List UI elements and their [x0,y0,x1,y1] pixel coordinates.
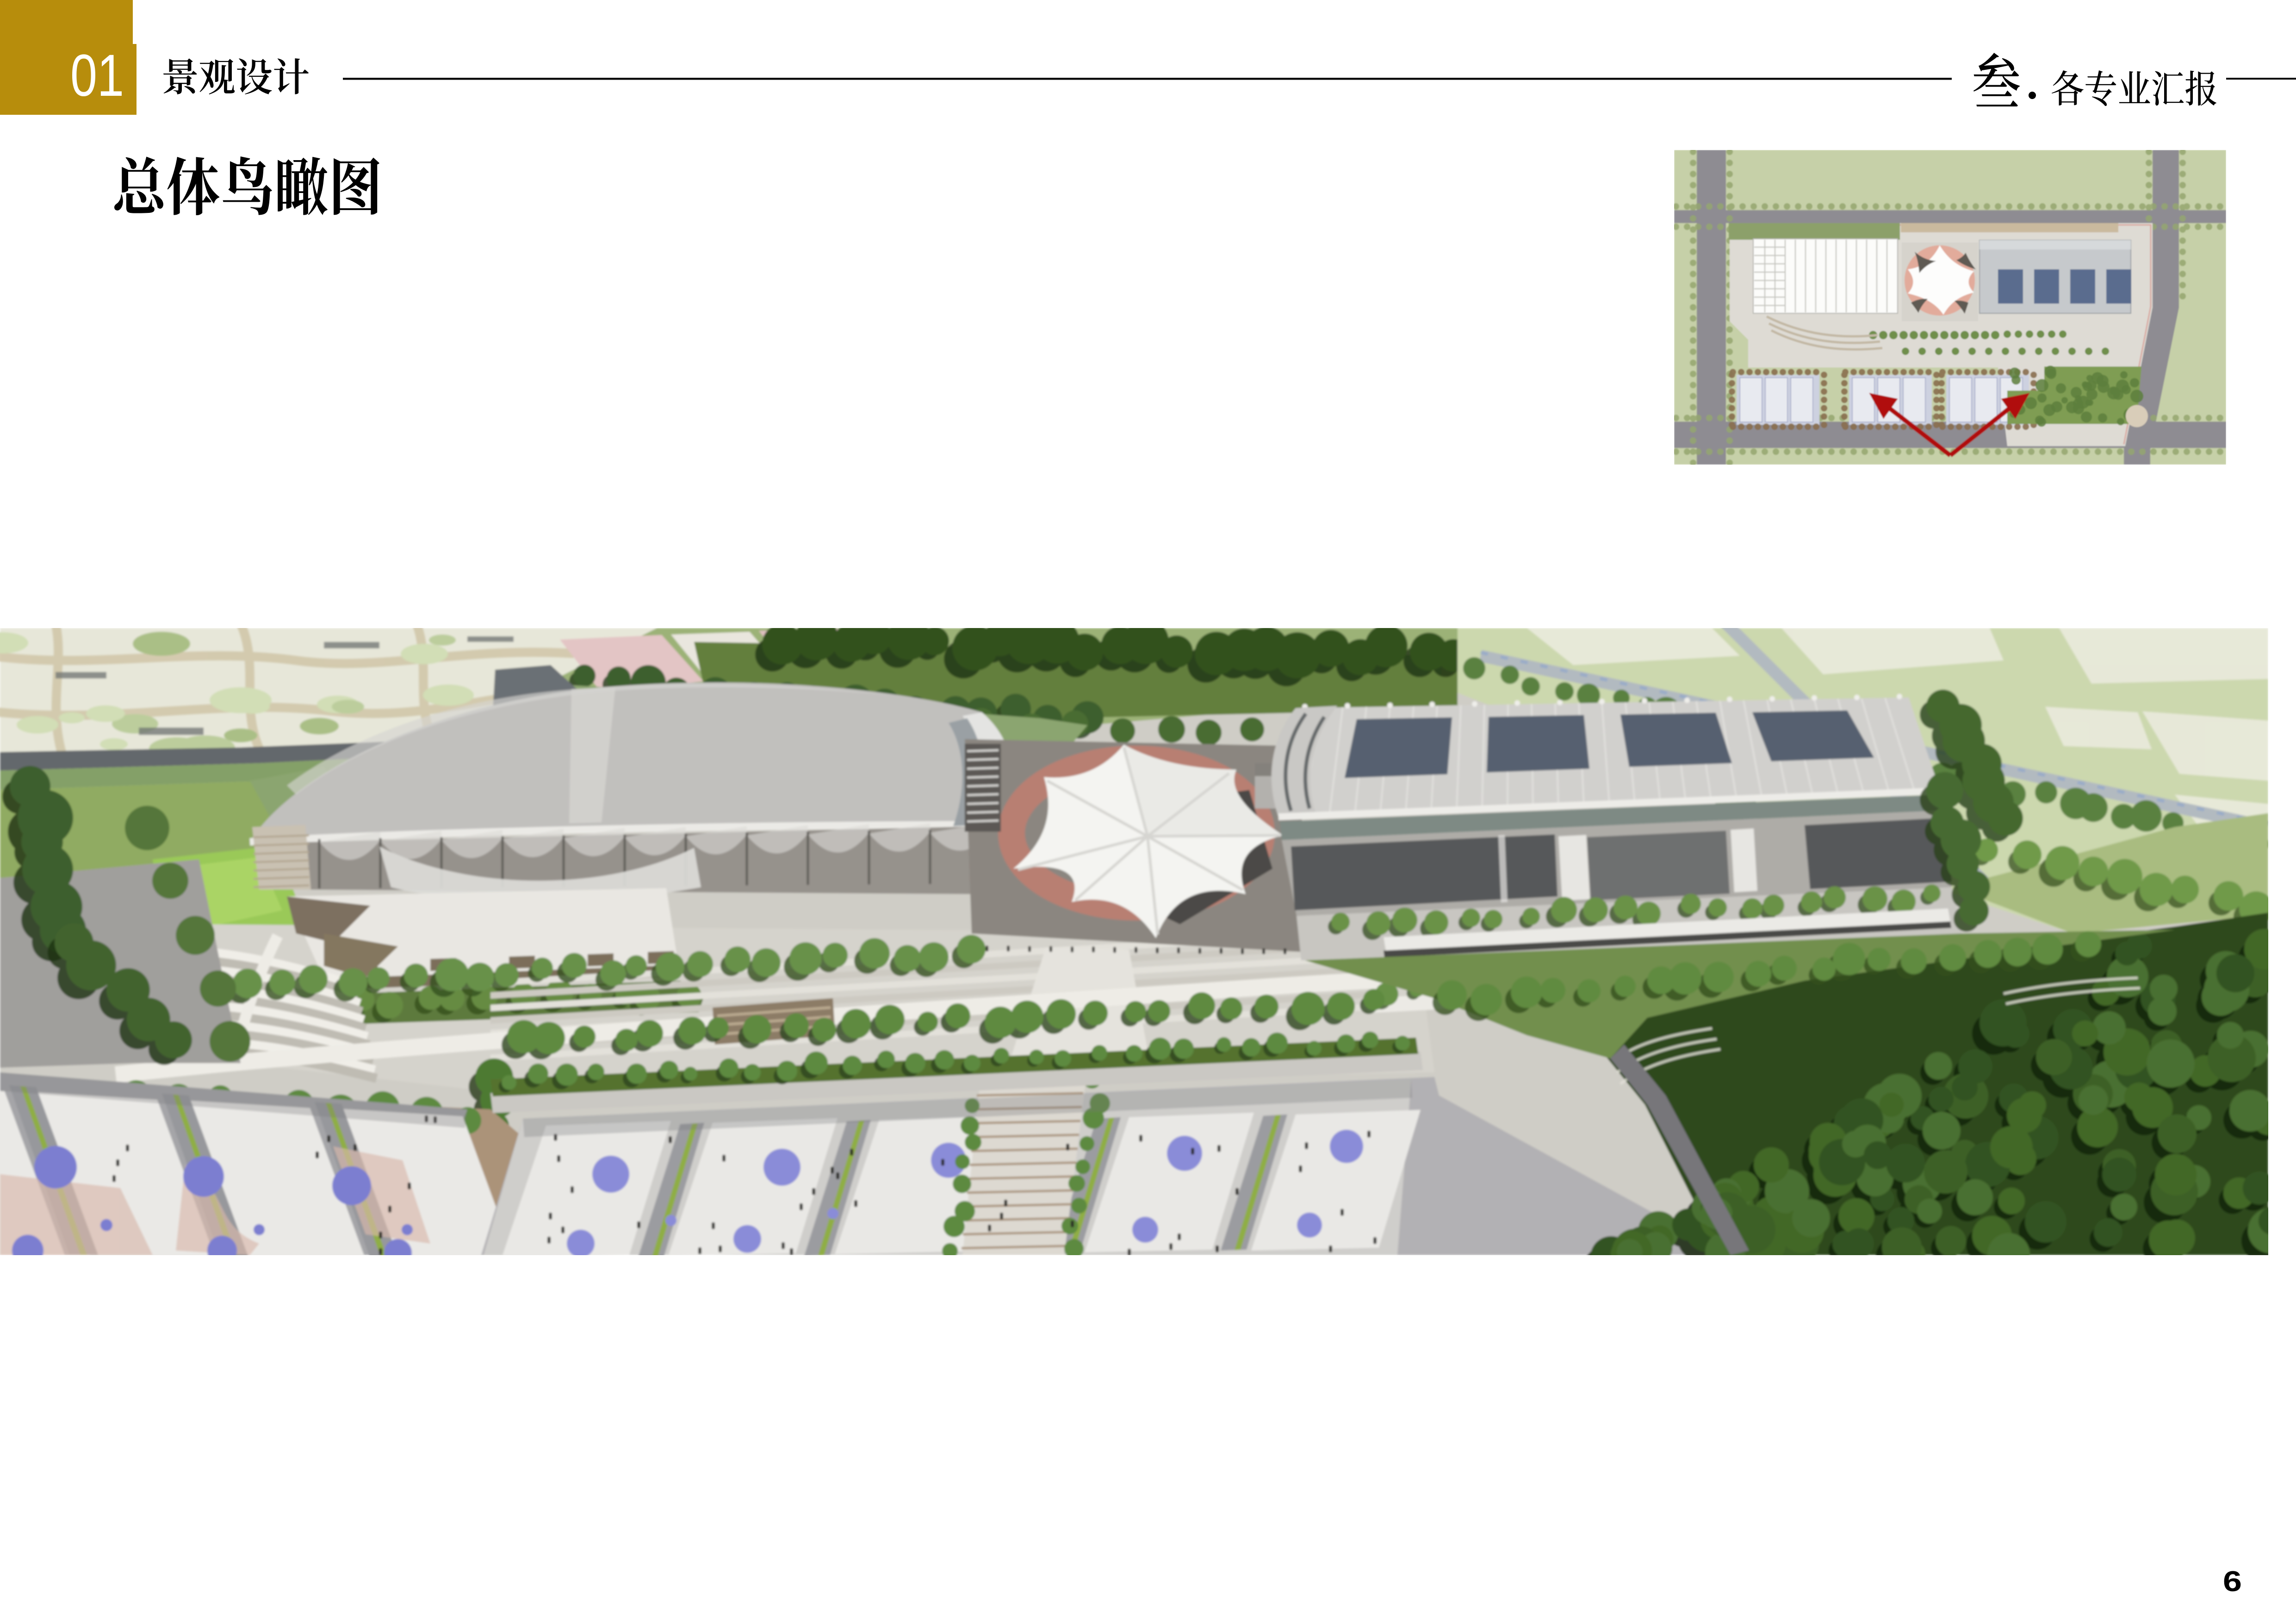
svg-text:01: 01 [70,43,124,109]
svg-text:6: 6 [2223,1566,2242,1598]
